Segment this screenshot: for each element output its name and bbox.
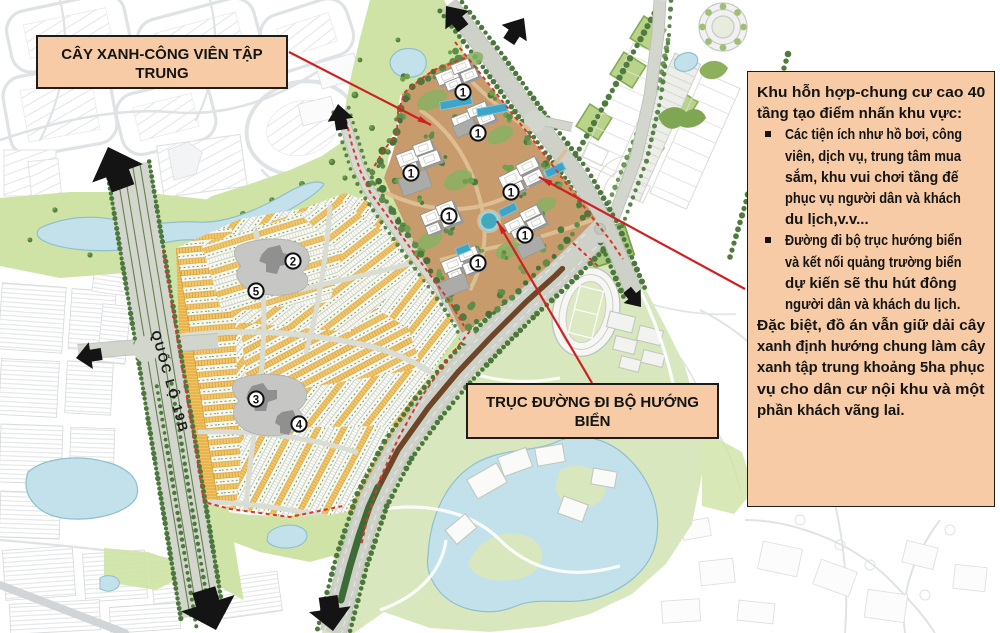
svg-text:1: 1 <box>508 187 515 199</box>
svg-text:1: 1 <box>446 211 453 223</box>
svg-text:1: 1 <box>522 230 529 242</box>
svg-text:2: 2 <box>290 256 296 268</box>
svg-text:3: 3 <box>253 394 259 406</box>
svg-text:1: 1 <box>475 258 482 270</box>
svg-text:1: 1 <box>408 168 415 180</box>
svg-text:1: 1 <box>475 128 482 140</box>
svg-text:4: 4 <box>296 419 303 431</box>
svg-text:5: 5 <box>253 286 260 298</box>
svg-text:1: 1 <box>460 87 467 99</box>
